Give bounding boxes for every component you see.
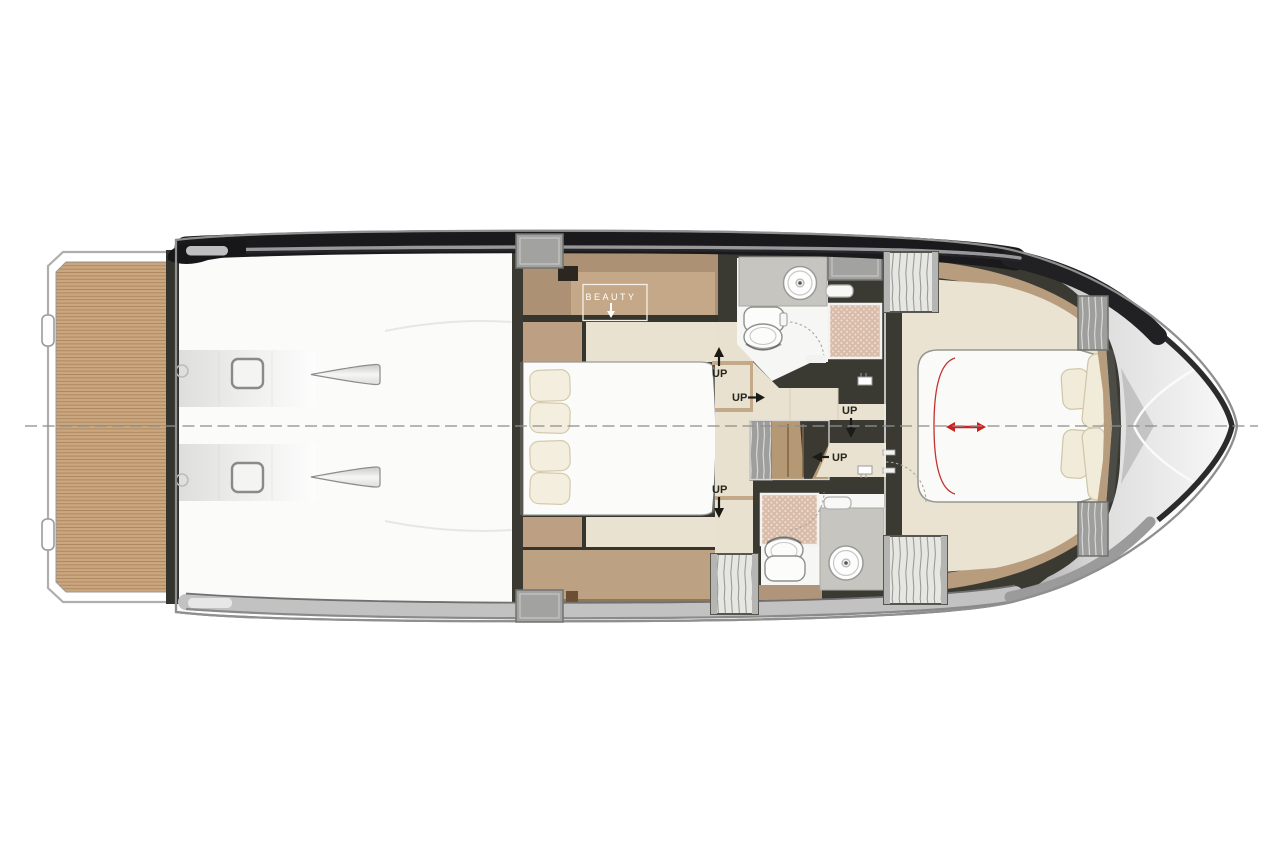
svg-text:UP: UP: [842, 405, 857, 417]
svg-text:UP: UP: [712, 368, 727, 380]
svg-text:UP: UP: [732, 392, 747, 404]
svg-text:BEAUTY: BEAUTY: [585, 292, 636, 302]
svg-text:UP: UP: [832, 452, 847, 464]
svg-text:UP: UP: [712, 484, 727, 496]
